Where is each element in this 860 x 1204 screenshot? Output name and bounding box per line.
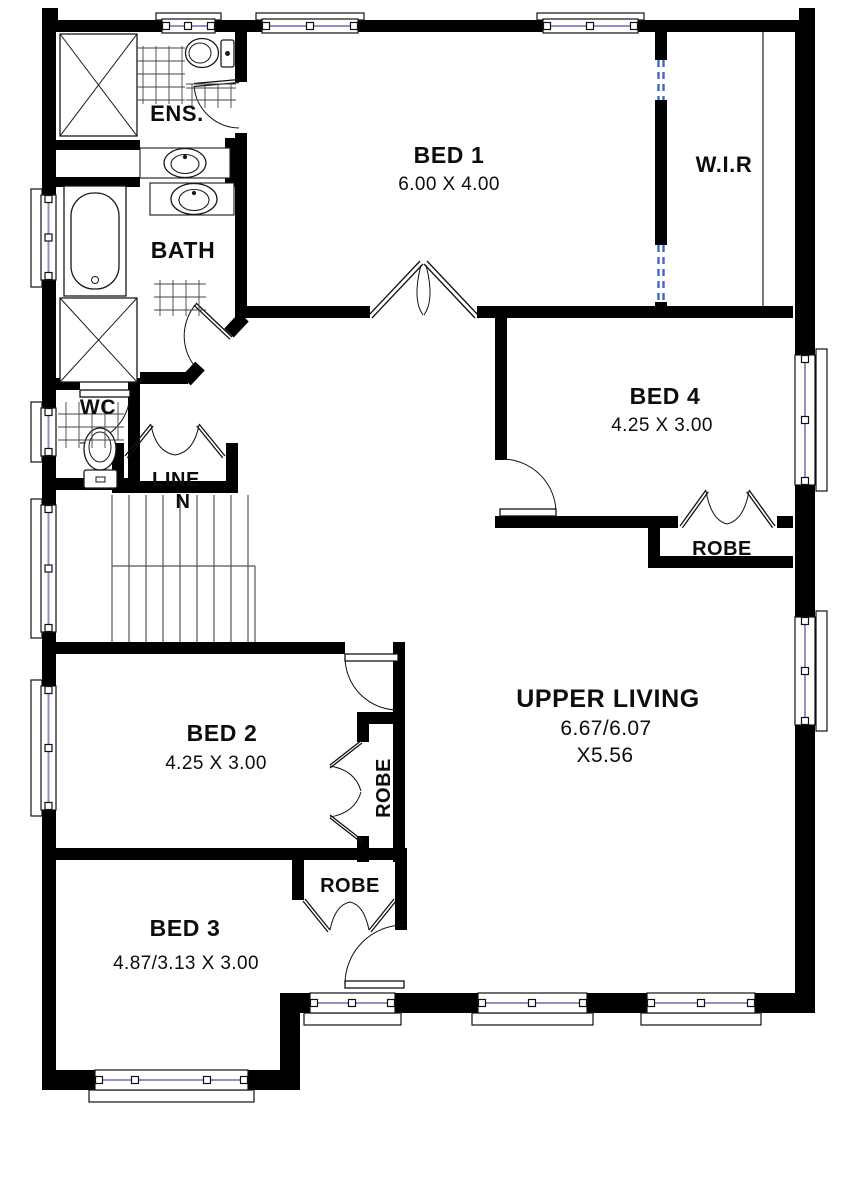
room-ens: ENS.: [150, 101, 204, 126]
bed4-label: BED 4: [630, 383, 701, 409]
bed3-dims: 4.87/3.13 X 3.00: [113, 953, 259, 974]
room-bath: BATH: [151, 237, 216, 263]
bed3-robe-bifold-doors: [303, 899, 396, 932]
bed3-door: [345, 925, 404, 988]
bed4-dims: 4.25 X 3.00: [611, 415, 713, 436]
window-left-stairs: [31, 499, 56, 638]
ens-toilet: [186, 39, 235, 68]
window-left-bath: [31, 189, 56, 287]
bath-shower: [60, 298, 137, 382]
window-top-bed1-right: [537, 13, 644, 33]
window-bottom-2: [472, 993, 593, 1025]
room-bed2: BED 2 4.25 X 3.00: [165, 720, 267, 774]
bed4-robe-bifold-doors: [680, 490, 775, 528]
window-left-bed2: [31, 680, 56, 816]
floor-plan-page: BED 1 6.00 X 4.00 W.I.R ENS. BATH WC LIN…: [0, 0, 860, 1204]
bed2-dims: 4.25 X 3.00: [165, 753, 267, 774]
upper-living-dims1: 6.67/6.07: [560, 717, 651, 740]
bed2-door: [345, 654, 398, 710]
floor-plan: BED 1 6.00 X 4.00 W.I.R ENS. BATH WC LIN…: [0, 0, 860, 1204]
ens-shower: [60, 34, 137, 136]
room-bed3: BED 3 4.87/3.13 X 3.00: [113, 915, 259, 974]
upper-living-dims2: X5.56: [577, 744, 634, 767]
bed3-robe-label: ROBE: [320, 875, 380, 897]
bed4-robe-label: ROBE: [692, 538, 752, 560]
bath-floor-tiles: [154, 280, 206, 316]
window-top-bed1-left: [256, 13, 364, 33]
wall-diagonal-stubs: [186, 317, 244, 381]
bed1-label: BED 1: [414, 142, 485, 168]
bath-label: BATH: [151, 237, 216, 263]
room-bed4: BED 4 4.25 X 3.00: [611, 383, 713, 436]
ens-floor-tiles: [137, 46, 185, 104]
bathtub: [64, 186, 126, 296]
bed2-label: BED 2: [187, 720, 258, 746]
linen-label-line2: N: [175, 491, 190, 513]
wir-label: W.I.R: [696, 152, 753, 177]
window-right-bed4: [795, 349, 827, 491]
bath-door: [184, 303, 232, 371]
window-top-ens: [156, 13, 221, 33]
bed1-dims: 6.00 X 4.00: [398, 174, 500, 195]
ens-label: ENS.: [150, 101, 204, 126]
bed2-robe-label: ROBE: [373, 758, 395, 818]
bed2-robe-bifold-doors: [330, 740, 362, 843]
window-right-living: [795, 611, 827, 731]
wc-toilet: [84, 428, 117, 488]
ens-vanity: [140, 148, 230, 178]
window-bottom-1: [304, 993, 401, 1025]
linen-label-line1: LINE: [152, 469, 200, 491]
wc-label: WC: [80, 396, 116, 419]
room-wir: W.I.R: [696, 152, 753, 177]
room-upper-living: UPPER LIVING 6.67/6.07 X5.56: [516, 685, 700, 767]
window-bottom-3: [641, 993, 761, 1025]
bath-vanity: [150, 183, 234, 215]
room-wc: WC: [80, 396, 116, 419]
bed4-door: [500, 459, 556, 516]
staircase: [112, 495, 255, 642]
bed1-double-door: [369, 261, 478, 318]
upper-living-label: UPPER LIVING: [516, 685, 700, 713]
room-bed1: BED 1 6.00 X 4.00: [398, 142, 500, 195]
bed3-label: BED 3: [150, 915, 221, 941]
window-bay-bed3: [89, 1070, 254, 1102]
window-left-wc: [31, 402, 56, 462]
